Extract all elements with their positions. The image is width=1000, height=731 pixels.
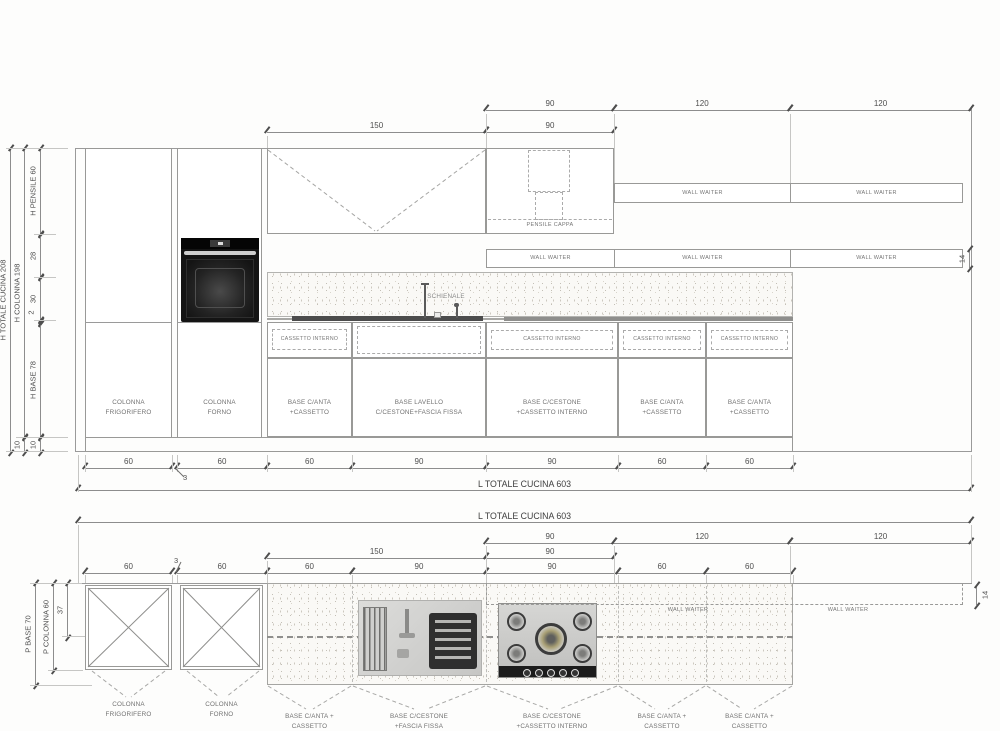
dim-top: 120 <box>614 110 790 111</box>
dim-plan-top: 90 <box>486 558 614 559</box>
extension-line <box>486 455 487 472</box>
faucet-stem <box>424 284 426 318</box>
extension-line <box>618 455 619 472</box>
hood-cabinet-label: PENSILE CAPPA <box>496 222 604 229</box>
cooktop-knob <box>523 669 531 677</box>
dim-column-height: H COLONNA 198 <box>24 148 25 437</box>
extension-line <box>614 546 615 583</box>
extension-line <box>6 148 68 149</box>
dim-label-2: 2 <box>27 310 36 314</box>
unit-label-base1: BASE C/ANTA +CASSETTO <box>267 398 352 419</box>
dim-plan-37: 37 <box>67 583 68 637</box>
extension-line <box>614 114 615 183</box>
dim-label: H BASE 78 <box>29 361 37 399</box>
hood-dashed-line <box>488 219 612 220</box>
extension-line <box>6 451 68 452</box>
dim-total-height: H TOTALE CUCINA 208 <box>10 148 11 452</box>
elev-right-wall-line <box>971 106 972 452</box>
extension-line <box>793 575 794 583</box>
dim-label: 90 <box>486 458 618 466</box>
dim-wall-waiter-height: 14 <box>969 249 970 268</box>
sink-accessory <box>434 312 441 318</box>
extension-line <box>267 136 268 148</box>
dim-label: 60 <box>177 458 267 466</box>
sink-faucet-base <box>399 633 415 638</box>
dim-label: 90 <box>486 122 614 130</box>
dim-label: 150 <box>267 122 486 130</box>
unit-label-base5: BASE C/ANTA +CASSETTO <box>706 398 793 419</box>
elev-left-wall-line <box>75 148 76 452</box>
elev-corner-wall-cabinet <box>267 148 486 234</box>
extension-line <box>706 455 707 472</box>
extension-line <box>706 575 707 583</box>
dim-total-length-plan: L TOTALE CUCINA 603 <box>78 522 971 523</box>
unit-label-oven: COLONNA FORNO <box>177 398 262 419</box>
extension-line <box>790 114 791 183</box>
unit-label-base4: BASE C/ANTA +CASSETTO <box>618 398 706 419</box>
sink-photo <box>358 600 482 676</box>
dim-label: 10 <box>13 440 21 448</box>
extension-line <box>30 685 92 686</box>
extension-line <box>267 561 268 583</box>
extension-line <box>486 114 487 148</box>
burner-large <box>535 623 567 655</box>
plan-label-base2: BASE C/CESTONE +FASCIA FISSA <box>352 712 486 731</box>
dim-label: 60 <box>267 458 352 466</box>
plan-wall-waiter-label: WALL WAITER <box>600 607 776 614</box>
elev-plinth <box>85 437 793 452</box>
dim-bottom: 60 <box>267 468 352 469</box>
cutlery-tray-slats <box>435 620 471 662</box>
gas-cooktop <box>498 603 597 678</box>
soap-dispenser <box>456 306 458 318</box>
dim-label: 60 <box>706 458 793 466</box>
plan-label-base5: BASE C/ANTA + CASSETTO <box>706 712 793 731</box>
wall-waiter-label: WALL WAITER <box>614 190 791 197</box>
dim-plan-top: 150 <box>267 558 486 559</box>
extension-line <box>78 455 79 492</box>
extension-line <box>793 455 794 472</box>
dim-bottom: 60 <box>618 468 706 469</box>
dim-plinth: 10 <box>24 437 25 452</box>
cooktop-knob <box>559 669 567 677</box>
extension-line <box>618 575 619 583</box>
unit-label-sink: BASE LAVELLO C/CESTONE+FASCIA FISSA <box>352 398 486 419</box>
extension-line <box>34 234 56 235</box>
dim-label: H COLONNA 198 <box>13 263 21 322</box>
dim-gap-28: 28 <box>40 234 41 277</box>
dim-label: 60 <box>177 563 267 571</box>
dim-label: 120 <box>614 533 790 541</box>
dim-bottom: 60 <box>85 468 172 469</box>
dim-label: 120 <box>790 100 971 108</box>
plan-label-base1: BASE C/ANTA + CASSETTO <box>267 712 352 731</box>
dish-rack <box>363 607 387 671</box>
faucet-spout <box>421 283 429 285</box>
dim-label: 60 <box>618 458 706 466</box>
dim-label: P BASE 70 <box>24 615 32 652</box>
dim-bottom: 60 <box>706 468 793 469</box>
burner-small <box>573 612 592 631</box>
elev-fridge-column <box>85 148 172 438</box>
dim-label: 150 <box>267 548 486 556</box>
dim-label: P COLONNA 60 <box>42 599 50 653</box>
extension-line <box>62 636 85 637</box>
inner-drawer-label: CASSETTO INTERNO <box>272 336 347 342</box>
backsplash <box>267 272 793 317</box>
wall-waiter-label: WALL WAITER <box>790 255 963 262</box>
oven-appliance <box>181 238 259 322</box>
dim-label: 60 <box>85 563 172 571</box>
backsplash-label: SCHIENALE <box>406 292 486 302</box>
dim-top: 90 <box>486 132 614 133</box>
dim-bottom: 60 <box>177 468 267 469</box>
sink-front-dashed <box>357 326 481 354</box>
dim-label: 60 <box>618 563 706 571</box>
dim-label: H PENSILE 60 <box>29 166 37 216</box>
dim-label: L TOTALE CUCINA 603 <box>78 512 971 521</box>
extension-line <box>267 455 268 472</box>
dim-top: 150 <box>267 132 486 133</box>
extension-line <box>34 320 56 321</box>
dim-label: 14 <box>981 591 989 599</box>
extension-line <box>486 546 487 583</box>
burner-small <box>573 644 592 663</box>
extension-line <box>34 277 56 278</box>
hood-chimney-lower-dashed <box>535 192 563 220</box>
dim-label: 37 <box>56 606 64 614</box>
extension-line <box>352 455 353 472</box>
sink-object <box>397 649 409 658</box>
cutlery-tray <box>429 613 477 669</box>
dim-plinth: 10 <box>40 437 41 452</box>
dim-label: H TOTALE CUCINA 208 <box>0 260 7 341</box>
dim-top: 90 <box>486 110 614 111</box>
dim-label: 90 <box>486 533 614 541</box>
dim-plan-wall-depth: 14 <box>976 585 977 605</box>
sink-faucet-top <box>405 609 409 635</box>
dim-label: 120 <box>790 533 971 541</box>
dim-label: 60 <box>85 458 172 466</box>
extension-line <box>971 455 972 492</box>
burner-small <box>507 644 526 663</box>
dim-plan-top: 90 <box>486 543 614 544</box>
dim-plan-column-depth: P COLONNA 60 <box>53 583 54 670</box>
dim-plan-chain: 60 <box>706 573 793 574</box>
burner-small <box>507 612 526 631</box>
hood-chimney-upper-dashed <box>528 150 570 192</box>
dim-label: 14 <box>958 254 966 262</box>
dim-plan-chain: 60 <box>618 573 706 574</box>
inner-drawer-label: CASSETTO INTERNO <box>711 336 788 342</box>
inner-drawer-label: CASSETTO INTERNO <box>623 336 701 342</box>
cooktop-knob <box>571 669 579 677</box>
cooktop-knob <box>535 669 543 677</box>
extension-line <box>177 575 178 583</box>
plan-wall-waiter-dashed <box>486 583 963 605</box>
dim-label: 90 <box>486 548 614 556</box>
unit-label-fridge: COLONNA FRIGORIFERO <box>85 398 172 419</box>
dim-label: 90 <box>486 563 618 571</box>
kitchen-technical-drawing: PENSILE CAPPA WALL WAITER WALL WAITER WA… <box>0 0 1000 731</box>
plan-label-base4: BASE C/ANTA + CASSETTO <box>618 712 706 731</box>
oven-display-dot <box>218 242 223 245</box>
dim-label: L TOTALE CUCINA 603 <box>78 480 971 489</box>
dim-gap-30: 30 <box>40 277 41 320</box>
dim-top: 120 <box>790 110 971 111</box>
extension-line <box>30 583 82 584</box>
extension-line <box>78 525 79 583</box>
plan-label-fridge: COLONNA FRIGORIFERO <box>85 700 172 721</box>
plan-label-oven: COLONNA FORNO <box>180 700 263 721</box>
inner-drawer-label: CASSETTO INTERNO <box>491 336 613 342</box>
countertop-dark-segment <box>292 316 483 321</box>
wall-waiter-label: WALL WAITER <box>614 255 791 262</box>
dim-plan-top: 120 <box>790 543 971 544</box>
dim-label: 120 <box>614 100 790 108</box>
plan-wall-waiter-label: WALL WAITER <box>760 607 936 614</box>
dim-bottom: 90 <box>352 468 486 469</box>
dim-label: 90 <box>352 458 486 466</box>
dim-label: 10 <box>29 440 37 448</box>
elev-fridge-door-split <box>85 322 172 323</box>
extension-line <box>85 575 86 583</box>
extension-line <box>172 575 173 583</box>
wall-waiter-label: WALL WAITER <box>486 255 615 262</box>
oven-handle <box>184 251 256 255</box>
dim-label: 90 <box>486 100 614 108</box>
dim-plan-base-depth: P BASE 70 <box>35 583 36 685</box>
extension-line <box>177 455 178 472</box>
dim-label: 30 <box>29 294 37 302</box>
extension-line <box>85 455 86 472</box>
extension-line <box>16 437 68 438</box>
wall-waiter-label: WALL WAITER <box>790 190 963 197</box>
plan-label-base3: BASE C/CESTONE +CASSETTO INTERNO <box>486 712 618 731</box>
plan-unit-divider-dashed <box>352 586 353 682</box>
dim-label: 90 <box>352 563 486 571</box>
plan-oven-column-inner <box>183 588 260 667</box>
dim-plan-chain: 60 <box>177 573 267 574</box>
dim-wall-cab-height: H PENSILE 60 <box>40 148 41 234</box>
extension-line <box>352 575 353 583</box>
dim-label: 60 <box>267 563 352 571</box>
dim-plan-chain: 60 <box>85 573 172 574</box>
dim-plan-top: 120 <box>614 543 790 544</box>
dim-plan-chain: 60 <box>267 573 352 574</box>
dim-plan-chain: 90 <box>352 573 486 574</box>
dim-total-length: L TOTALE CUCINA 603 <box>78 490 971 491</box>
countertop-gray-segment <box>504 317 793 321</box>
filler-dim-label-plan: 3 <box>174 556 178 565</box>
plan-fridge-column-inner <box>88 588 169 667</box>
dim-plan-chain: 90 <box>486 573 618 574</box>
extension-line <box>48 670 83 671</box>
soap-dispenser-knob <box>454 303 459 307</box>
extension-line <box>790 546 791 583</box>
extension-line <box>172 455 173 472</box>
oven-door-inner-outline <box>195 268 245 308</box>
dim-label: 60 <box>706 563 793 571</box>
unit-label-base3: BASE C/CESTONE +CASSETTO INTERNO <box>486 398 618 419</box>
cooktop-knob <box>547 669 555 677</box>
dim-label: 28 <box>29 251 37 259</box>
elev-oven-door-split <box>177 322 262 323</box>
dim-bottom: 90 <box>486 468 618 469</box>
dim-base-height: H BASE 78 <box>40 323 41 437</box>
extension-line <box>971 525 972 583</box>
